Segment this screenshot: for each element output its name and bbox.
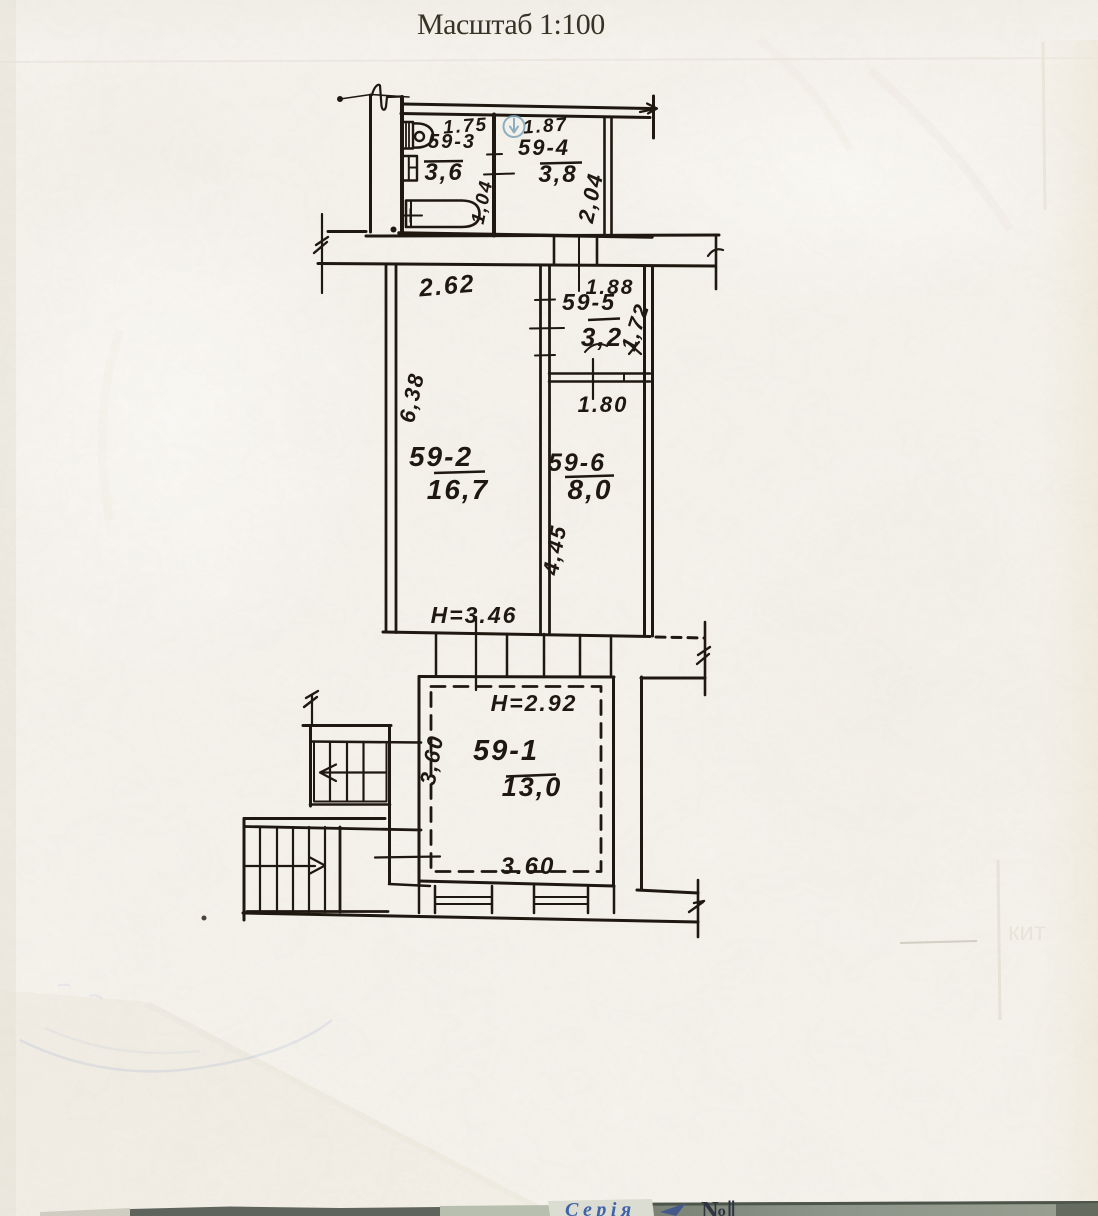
svg-text:1.80: 1.80 [578, 392, 629, 417]
svg-text:3,8: 3,8 [538, 161, 577, 188]
svg-text:16,7: 16,7 [427, 474, 490, 505]
svg-text:Серія: Серія [565, 1199, 636, 1216]
svg-text:H=3.46: H=3.46 [431, 602, 518, 628]
svg-text:3.60: 3.60 [501, 853, 556, 880]
svg-text:2.62: 2.62 [417, 270, 477, 303]
svg-text:59-4: 59-4 [518, 135, 570, 160]
svg-text:59-1: 59-1 [473, 735, 539, 767]
svg-text:кит: кит [1008, 916, 1046, 946]
svg-text:59-2: 59-2 [409, 441, 473, 472]
svg-text:H=2.92: H=2.92 [491, 690, 578, 716]
svg-text:Масштаб 1:100: Масштаб 1:100 [417, 8, 605, 41]
svg-text:№‖: №‖ [701, 1196, 736, 1216]
svg-text:59-6: 59-6 [548, 449, 606, 477]
svg-text:59-3: 59-3 [428, 131, 476, 153]
svg-text:8,0: 8,0 [568, 474, 613, 505]
svg-text:3,6: 3,6 [424, 159, 463, 186]
svg-text:59-5: 59-5 [562, 289, 616, 315]
